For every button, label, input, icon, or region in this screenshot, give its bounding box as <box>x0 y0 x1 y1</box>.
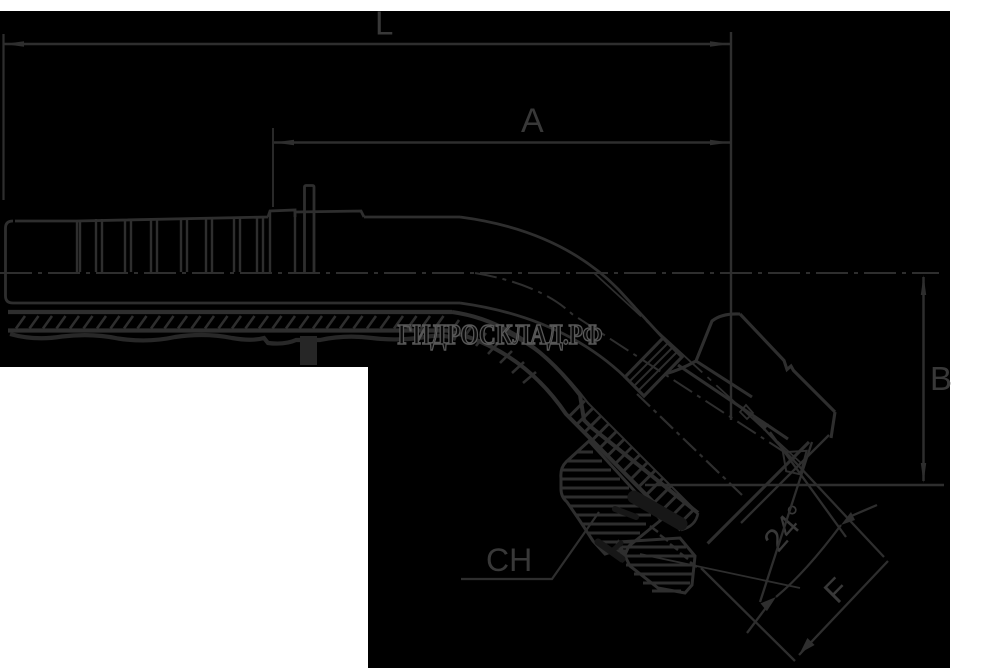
svg-text:ГИДРОСКЛАД.РФ: ГИДРОСКЛАД.РФ <box>398 320 603 351</box>
svg-text:CH: CH <box>486 542 532 578</box>
svg-text:A: A <box>521 102 544 140</box>
svg-text:B: B <box>930 360 952 397</box>
svg-text:L: L <box>375 5 393 42</box>
